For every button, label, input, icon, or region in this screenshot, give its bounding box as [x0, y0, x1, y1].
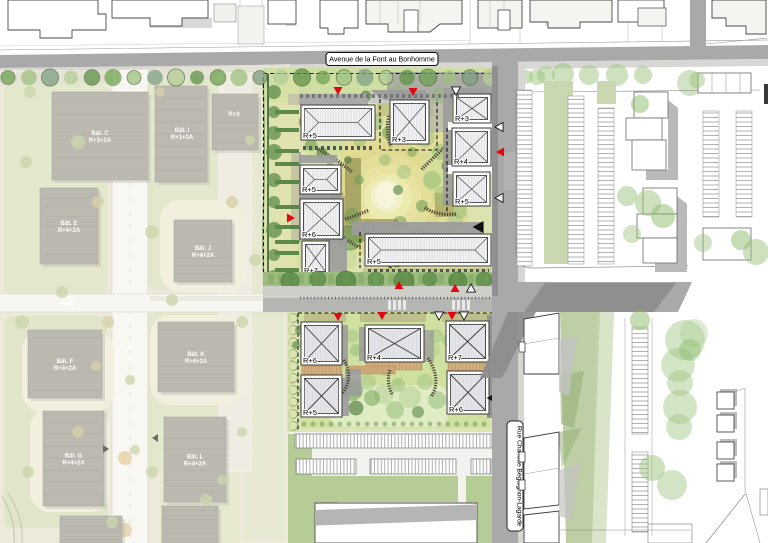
svg-text:R+4+2A: R+4+2A	[54, 366, 77, 372]
svg-text:R+4+2A: R+4+2A	[58, 228, 81, 234]
svg-text:R+4+2A: R+4+2A	[184, 462, 207, 468]
svg-text:R+3: R+3	[455, 114, 469, 123]
svg-text:Bât. J: Bât. J	[195, 246, 211, 252]
svg-text:R+4: R+4	[367, 353, 381, 362]
svg-text:Bât. C: Bât. C	[91, 131, 109, 137]
svg-text:Bât. E: Bât. E	[60, 221, 77, 227]
svg-text:Bât. L: Bât. L	[187, 455, 204, 461]
svg-text:R+5: R+5	[367, 257, 381, 266]
svg-text:R+5: R+5	[303, 408, 317, 417]
svg-text:Bât. K: Bât. K	[187, 352, 205, 358]
svg-text:R+5: R+5	[302, 185, 316, 194]
svg-text:R+3+2A: R+3+2A	[171, 135, 194, 141]
svg-text:R+5: R+5	[303, 131, 317, 140]
svg-text:R+4+2A: R+4+2A	[192, 253, 215, 259]
svg-text:R+6: R+6	[303, 356, 317, 365]
svg-text:R+3: R+3	[228, 112, 240, 118]
svg-text:R+3+2A: R+3+2A	[89, 138, 112, 144]
svg-text:R+5: R+5	[455, 197, 469, 206]
svg-text:R+4+2A: R+4+2A	[62, 461, 85, 467]
svg-text:R+4: R+4	[454, 157, 468, 166]
svg-text:R+6: R+6	[449, 405, 463, 414]
svg-text:R+7: R+7	[448, 353, 462, 362]
svg-text:Avenue de la Font au Bonhomme: Avenue de la Font au Bonhomme	[329, 56, 435, 64]
svg-text:R+3: R+3	[392, 135, 406, 144]
svg-text:Rue Charlotte Béguignon-Lagard: Rue Charlotte Béguignon-Lagarde	[516, 426, 523, 527]
svg-text:Bât. G: Bât. G	[65, 454, 83, 460]
svg-text:R+4+2A: R+4+2A	[185, 359, 208, 365]
svg-text:Bât. I: Bât. I	[175, 128, 190, 134]
svg-text:Bât. F: Bât. F	[57, 359, 74, 365]
svg-text:R+6: R+6	[302, 230, 316, 239]
